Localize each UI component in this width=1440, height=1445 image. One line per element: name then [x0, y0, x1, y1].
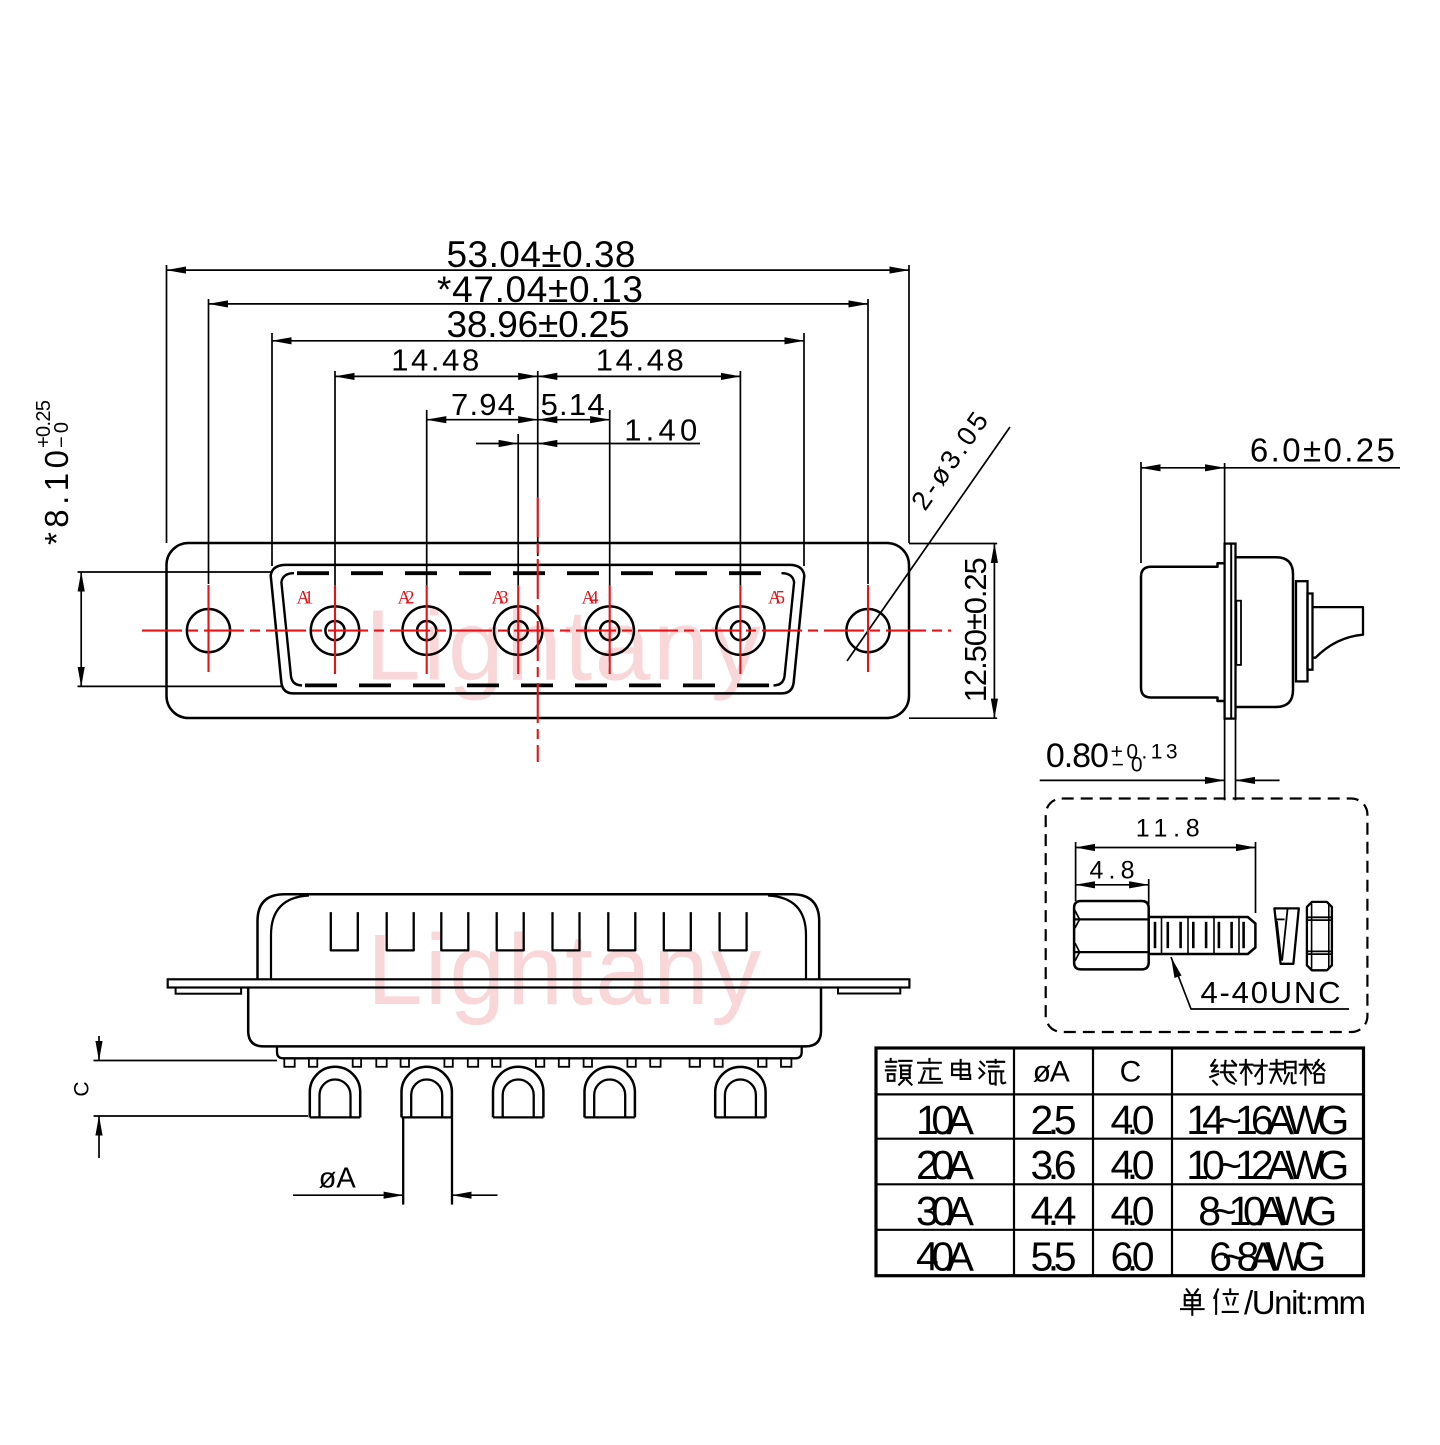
svg-text:14~16AWG: 14~16AWG — [1186, 1097, 1349, 1143]
svg-text:5.5: 5.5 — [1031, 1233, 1077, 1279]
svg-text:A3: A3 — [492, 589, 509, 609]
svg-text:4.0: 4.0 — [1111, 1097, 1155, 1143]
svg-text:3.6: 3.6 — [1031, 1142, 1077, 1188]
svg-text:C: C — [1120, 1056, 1142, 1089]
svg-text:14.48: 14.48 — [596, 342, 684, 377]
svg-text:øA: øA — [319, 1163, 357, 1195]
svg-text:12.50±0.25: 12.50±0.25 — [958, 557, 993, 702]
svg-text:4.0: 4.0 — [1111, 1142, 1155, 1188]
svg-text:8~10AWG: 8~10AWG — [1198, 1188, 1337, 1234]
svg-text:A2: A2 — [398, 589, 415, 609]
svg-text:0.80: 0.80 — [1046, 737, 1109, 775]
svg-text:C: C — [71, 1081, 94, 1096]
svg-text:14.48: 14.48 — [391, 342, 479, 377]
svg-text:1.40: 1.40 — [624, 413, 697, 448]
svg-text:4.8: 4.8 — [1090, 857, 1135, 885]
svg-text:10A: 10A — [916, 1097, 975, 1143]
svg-text:30A: 30A — [916, 1188, 975, 1234]
svg-text:40A: 40A — [916, 1233, 975, 1279]
svg-text:6~8AWG: 6~8AWG — [1209, 1233, 1326, 1279]
svg-text:øA: øA — [1033, 1056, 1070, 1089]
svg-text:5.14: 5.14 — [541, 387, 605, 422]
svg-text:4-40UNC: 4-40UNC — [1201, 975, 1341, 1010]
svg-text:10~12AWG: 10~12AWG — [1186, 1142, 1349, 1188]
svg-text:4.0: 4.0 — [1111, 1188, 1155, 1234]
svg-text:/Unit:mm: /Unit:mm — [1244, 1284, 1366, 1321]
svg-text:6.0: 6.0 — [1111, 1233, 1155, 1279]
svg-text:38.96±0.25: 38.96±0.25 — [447, 304, 630, 345]
svg-text:A5: A5 — [768, 589, 785, 609]
svg-text:2.5: 2.5 — [1031, 1097, 1077, 1143]
svg-text:7.94: 7.94 — [451, 387, 515, 422]
svg-text:A4: A4 — [582, 589, 599, 609]
svg-text:A1: A1 — [297, 589, 314, 609]
svg-text:20A: 20A — [916, 1142, 975, 1188]
svg-text:4.4: 4.4 — [1031, 1188, 1077, 1234]
